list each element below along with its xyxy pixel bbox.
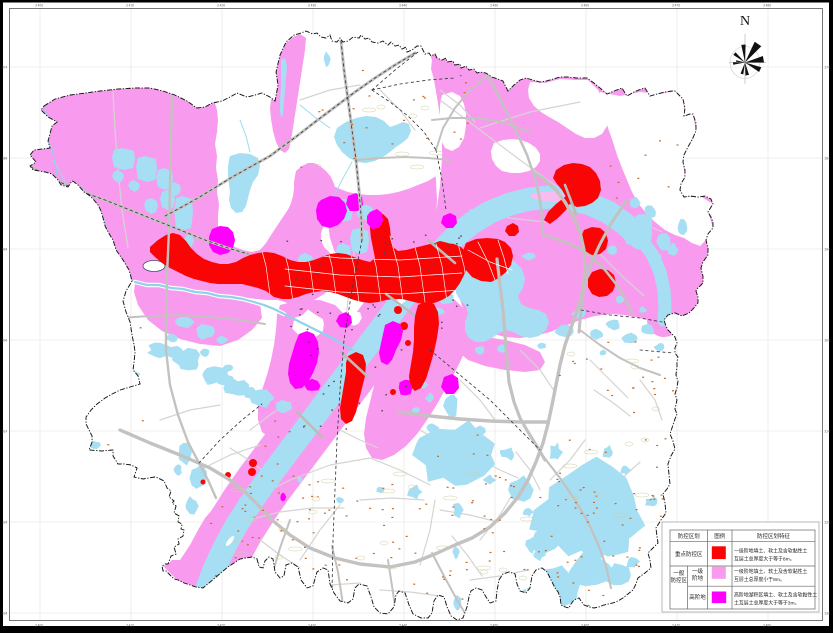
svg-text:高阶地湖积区填土、软土及含软黏性土: 高阶地湖积区填土、软土及含软黏性土 [734, 592, 817, 599]
svg-text:3 446: 3 446 [399, 624, 407, 628]
svg-text:3 436: 3 436 [308, 624, 316, 628]
svg-text:一级: 一级 [692, 567, 704, 575]
svg-text:3 406: 3 406 [35, 624, 43, 628]
svg-text:3 456: 3 456 [490, 624, 498, 628]
svg-text:高阶地: 高阶地 [689, 593, 706, 601]
svg-text:334: 334 [2, 612, 8, 616]
svg-text:374: 374 [2, 66, 8, 70]
svg-text:3 416: 3 416 [126, 624, 134, 628]
svg-text:一般: 一般 [673, 569, 685, 577]
svg-text:一级阶地填土、软土及含软黏性土: 一级阶地填土、软土及含软黏性土 [734, 568, 807, 575]
svg-text:3 486: 3 486 [763, 4, 771, 8]
svg-text:394: 394 [825, 248, 831, 252]
svg-text:314: 314 [825, 430, 831, 434]
svg-text:互层土总厚度小于8m。: 互层土总厚度小于8m。 [734, 576, 785, 583]
svg-text:防控区划: 防控区划 [678, 532, 700, 540]
svg-text:3 426: 3 426 [217, 624, 225, 628]
svg-text:图例: 图例 [714, 532, 726, 540]
svg-text:3 476: 3 476 [672, 4, 680, 8]
svg-text:3 466: 3 466 [581, 624, 589, 628]
svg-text:防控区划特征: 防控区划特征 [757, 532, 791, 540]
svg-text:3 416: 3 416 [126, 4, 134, 8]
svg-text:3 476: 3 476 [672, 624, 680, 628]
svg-text:3 436: 3 436 [308, 4, 316, 8]
svg-text:3 406: 3 406 [35, 4, 43, 8]
svg-text:互层土总厚度大于等于8m。: 互层土总厚度大于等于8m。 [734, 556, 795, 563]
svg-text:304: 304 [825, 339, 831, 343]
svg-text:防控区: 防控区 [670, 576, 687, 584]
svg-text:384: 384 [825, 157, 831, 161]
svg-text:384: 384 [2, 157, 8, 161]
svg-text:324: 324 [2, 521, 8, 525]
svg-text:334: 334 [825, 612, 831, 616]
svg-text:重点防控区: 重点防控区 [675, 550, 703, 558]
svg-text:3 456: 3 456 [490, 4, 498, 8]
svg-text:3 466: 3 466 [581, 4, 589, 8]
svg-text:3 486: 3 486 [763, 624, 771, 628]
svg-text:394: 394 [2, 248, 8, 252]
svg-text:土互层土总厚度大于等于3m。: 土互层土总厚度大于等于3m。 [734, 600, 799, 607]
svg-text:一级阶地填土、软土及含软黏性土: 一级阶地填土、软土及含软黏性土 [734, 548, 807, 555]
svg-text:3 446: 3 446 [399, 4, 407, 8]
svg-text:324: 324 [825, 521, 831, 525]
svg-text:阶地: 阶地 [692, 574, 704, 582]
svg-text:314: 314 [2, 430, 8, 434]
svg-text:N: N [740, 14, 750, 29]
svg-text:374: 374 [825, 66, 831, 70]
svg-text:304: 304 [2, 339, 8, 343]
svg-text:3 426: 3 426 [217, 4, 225, 8]
